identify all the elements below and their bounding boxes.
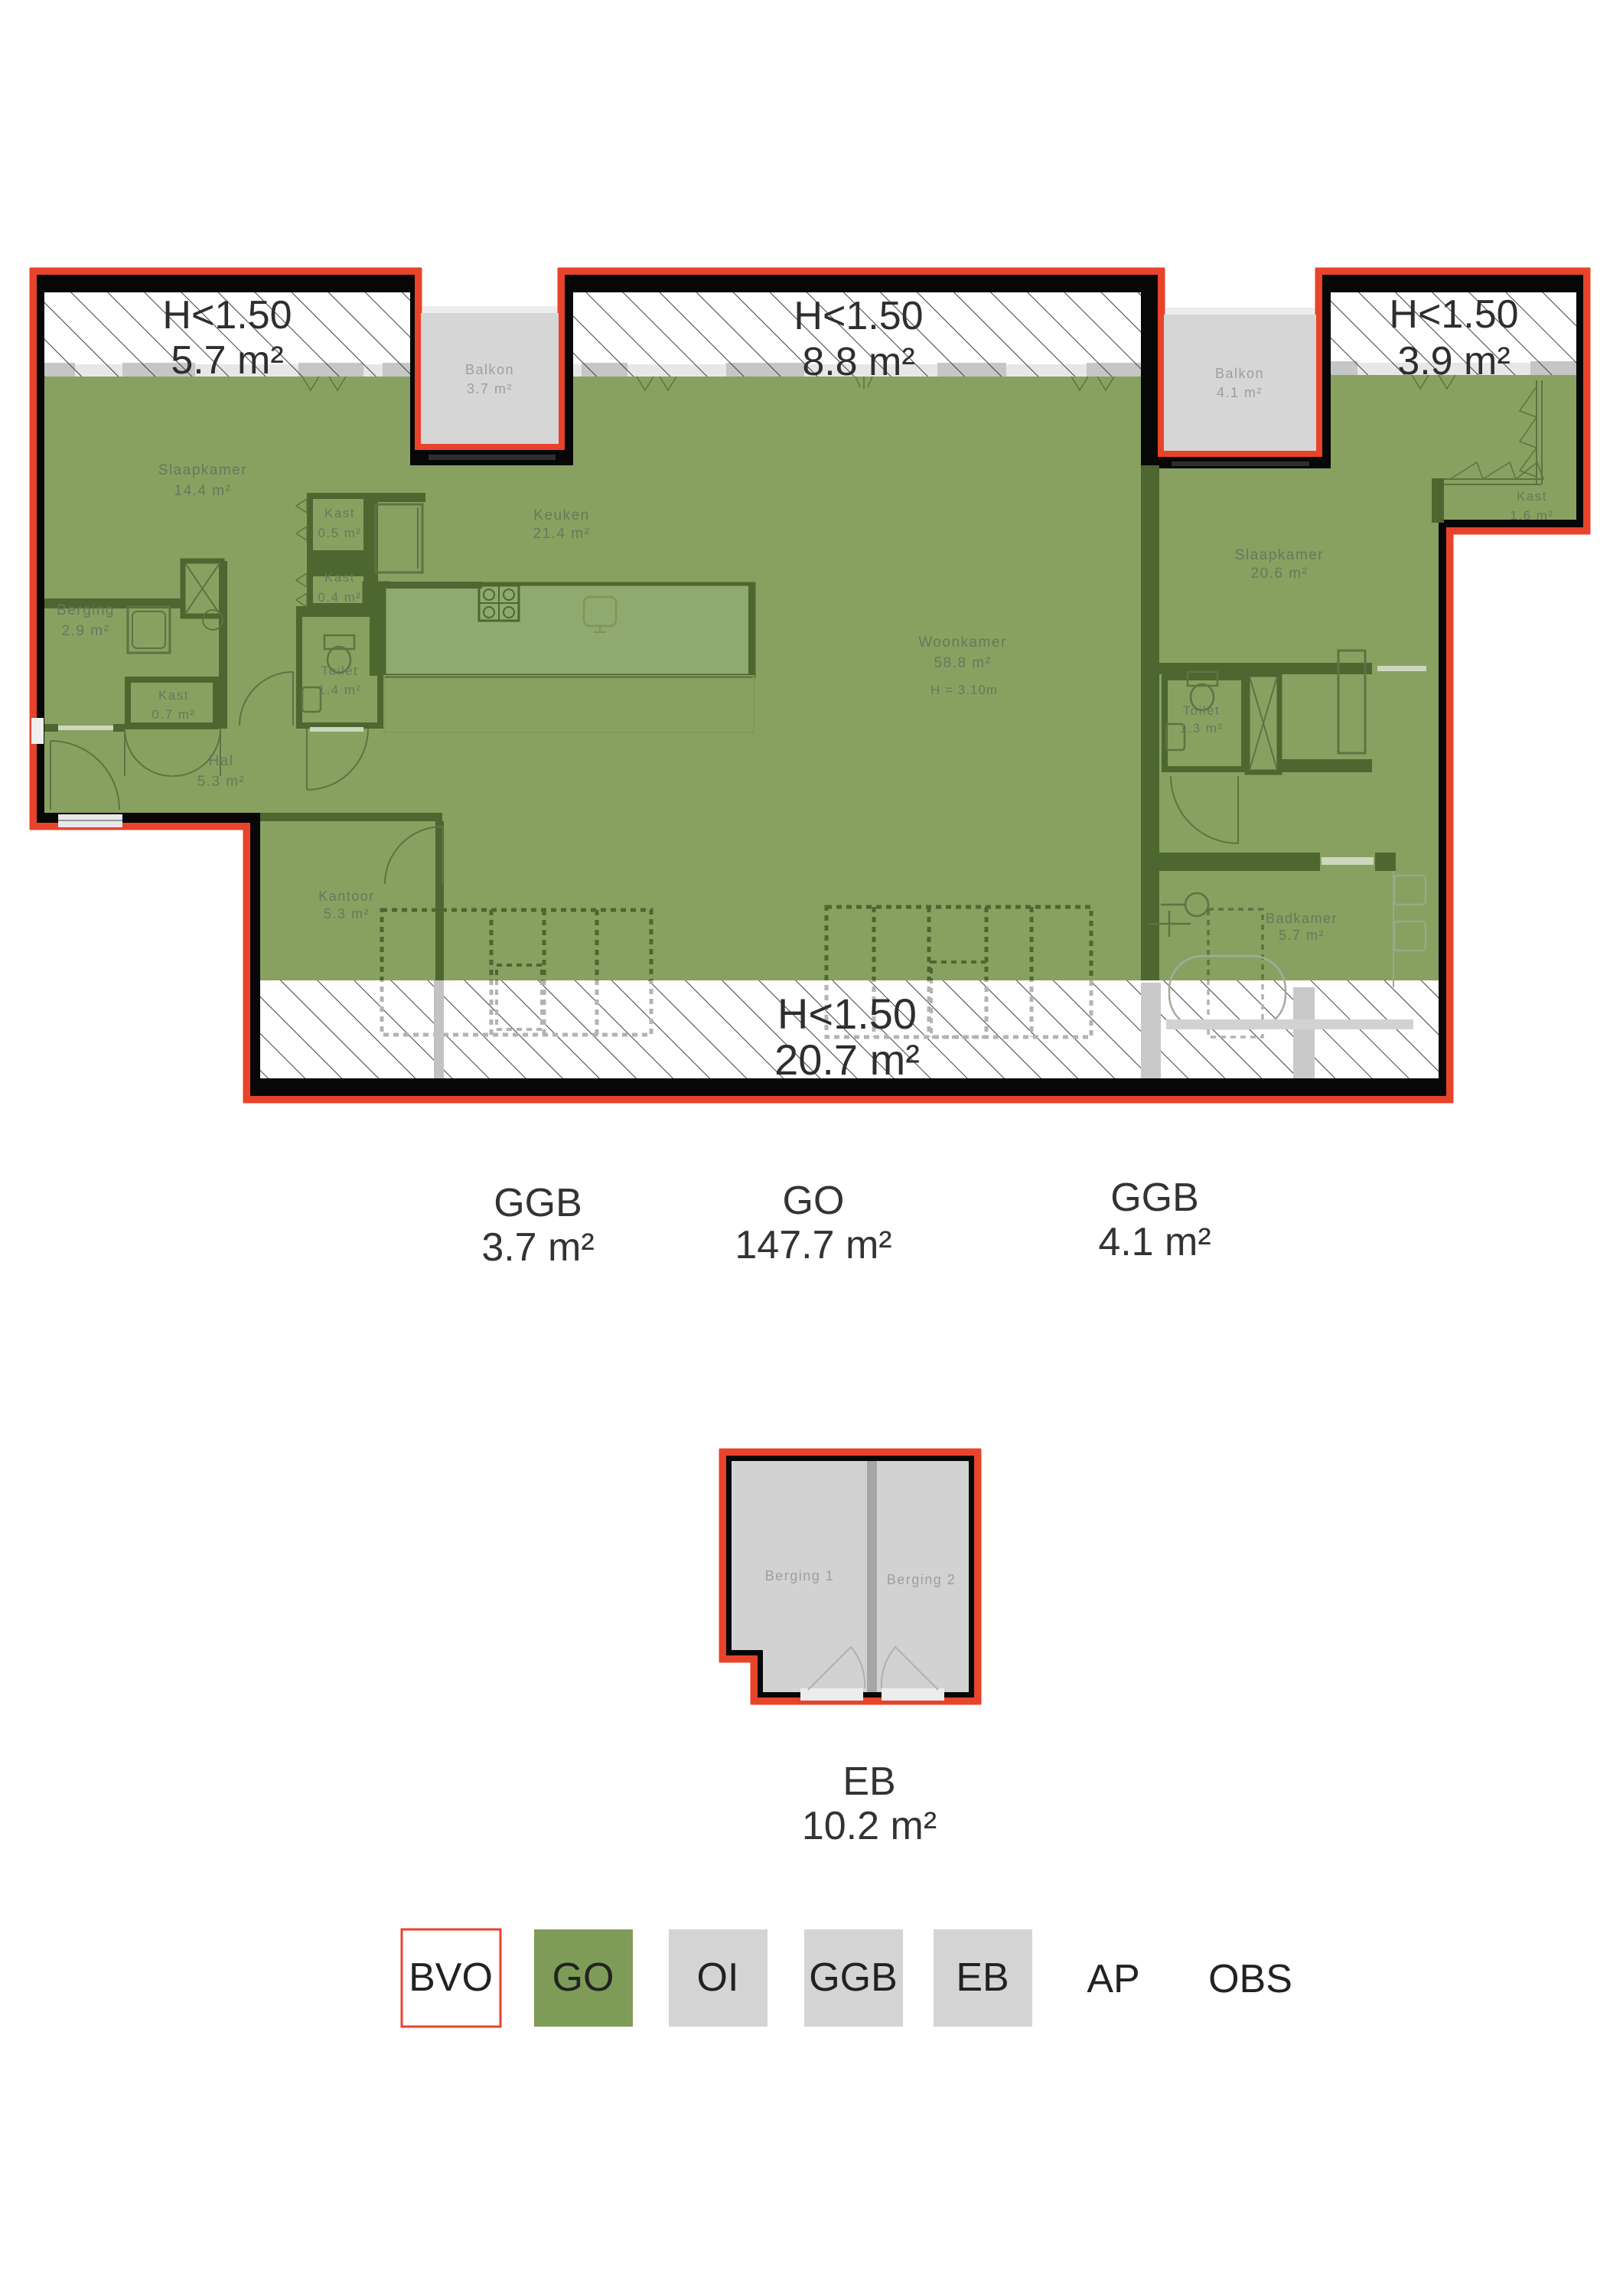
svg-text:GGB: GGB xyxy=(1110,1176,1199,1220)
svg-text:3.7 m²: 3.7 m² xyxy=(467,381,513,396)
svg-text:0.7 m²: 0.7 m² xyxy=(152,707,195,722)
svg-text:5.3 m²: 5.3 m² xyxy=(324,906,370,921)
svg-text:4.1 m²: 4.1 m² xyxy=(1098,1220,1211,1264)
svg-text:0.5 m²: 0.5 m² xyxy=(318,526,361,540)
svg-text:Berging: Berging xyxy=(57,602,115,618)
svg-text:EB: EB xyxy=(842,1760,895,1804)
svg-text:H<1.50: H<1.50 xyxy=(1389,292,1518,337)
svg-text:Woonkamer: Woonkamer xyxy=(918,634,1007,651)
svg-text:Kantoor: Kantoor xyxy=(318,889,375,904)
svg-text:Berging 2: Berging 2 xyxy=(887,1572,957,1587)
svg-text:Hal: Hal xyxy=(208,753,233,769)
svg-text:5.7 m²: 5.7 m² xyxy=(171,338,283,383)
svg-text:Slaapkamer: Slaapkamer xyxy=(1235,547,1324,563)
svg-text:0.4 m²: 0.4 m² xyxy=(318,590,361,605)
svg-text:2.9 m²: 2.9 m² xyxy=(62,623,110,639)
svg-text:20.7 m²: 20.7 m² xyxy=(774,1035,920,1084)
svg-text:3.7 m²: 3.7 m² xyxy=(481,1225,594,1270)
svg-text:GO: GO xyxy=(552,1955,614,2000)
svg-text:20.6 m²: 20.6 m² xyxy=(1251,566,1309,582)
svg-text:OI: OI xyxy=(697,1955,739,2000)
svg-text:14.4 m²: 14.4 m² xyxy=(174,483,232,499)
svg-text:1.4 m²: 1.4 m² xyxy=(318,683,361,697)
svg-text:AP: AP xyxy=(1087,1957,1139,2001)
svg-text:Keuken: Keuken xyxy=(533,507,589,523)
svg-text:H<1.50: H<1.50 xyxy=(162,293,292,338)
svg-text:147.7 m²: 147.7 m² xyxy=(735,1223,891,1267)
svg-text:GGB: GGB xyxy=(809,1955,898,2000)
svg-text:58.8 m²: 58.8 m² xyxy=(934,655,992,671)
svg-text:GGB: GGB xyxy=(494,1181,582,1225)
svg-text:H = 3.10m: H = 3.10m xyxy=(930,683,998,697)
svg-text:Balkon: Balkon xyxy=(1215,366,1264,381)
svg-text:Kast: Kast xyxy=(158,688,189,703)
svg-text:Toilet: Toilet xyxy=(321,664,359,678)
svg-text:Balkon: Balkon xyxy=(465,362,514,377)
svg-text:Slaapkamer: Slaapkamer xyxy=(158,462,247,478)
svg-text:GO: GO xyxy=(783,1179,845,1223)
svg-text:EB: EB xyxy=(956,1955,1009,2000)
svg-text:Badkamer: Badkamer xyxy=(1266,911,1338,926)
svg-text:Kast: Kast xyxy=(1517,489,1547,504)
svg-text:3.9 m²: 3.9 m² xyxy=(1397,339,1510,383)
svg-text:4.1 m²: 4.1 m² xyxy=(1217,385,1263,400)
svg-text:21.4 m²: 21.4 m² xyxy=(533,526,591,542)
svg-text:1.3 m²: 1.3 m² xyxy=(1179,721,1223,735)
svg-text:H<1.50: H<1.50 xyxy=(777,990,917,1038)
svg-text:5.3 m²: 5.3 m² xyxy=(197,774,246,790)
svg-text:Toilet: Toilet xyxy=(1183,703,1221,718)
svg-text:BVO: BVO xyxy=(409,1955,493,2000)
svg-text:5.7 m²: 5.7 m² xyxy=(1279,928,1325,943)
svg-text:OBS: OBS xyxy=(1208,1957,1292,2001)
svg-text:8.8 m²: 8.8 m² xyxy=(802,340,914,384)
svg-text:H<1.50: H<1.50 xyxy=(794,294,923,338)
svg-text:1.6 m²: 1.6 m² xyxy=(1510,508,1553,523)
svg-text:10.2 m²: 10.2 m² xyxy=(802,1804,937,1848)
svg-text:Berging 1: Berging 1 xyxy=(765,1568,835,1583)
svg-text:Kast: Kast xyxy=(324,570,355,585)
svg-text:Kast: Kast xyxy=(324,506,355,520)
